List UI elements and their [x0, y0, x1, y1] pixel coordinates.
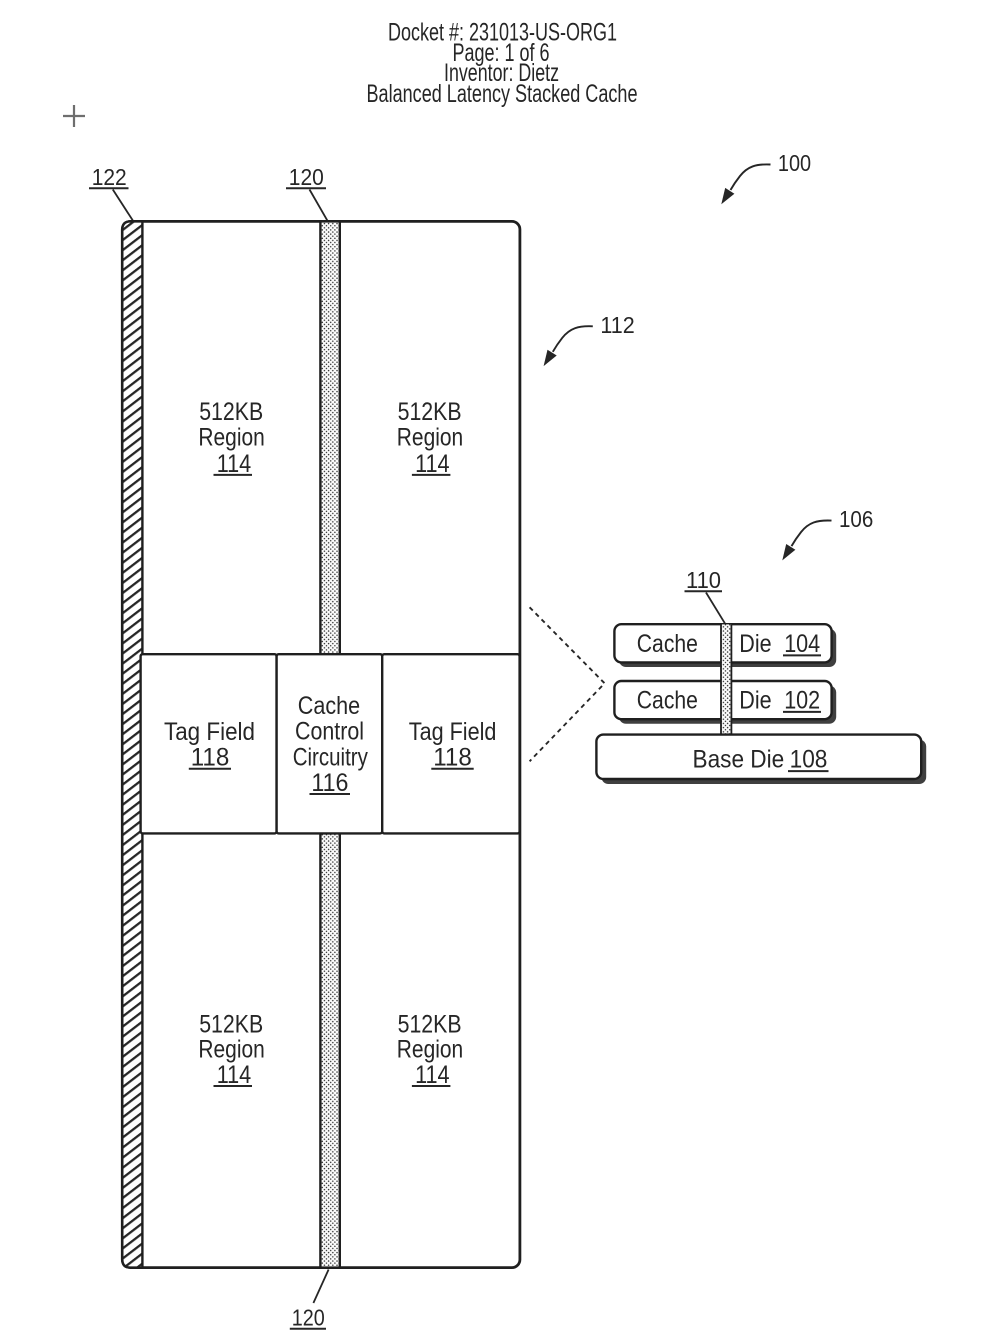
- svg-text:108: 108: [790, 747, 828, 774]
- svg-text:Circuitry: Circuitry: [293, 745, 369, 772]
- svg-text:Region: Region: [198, 1037, 264, 1064]
- svg-text:118: 118: [433, 745, 472, 772]
- svg-text:512KB: 512KB: [199, 1012, 263, 1039]
- svg-text:116: 116: [311, 770, 348, 797]
- svg-text:100: 100: [778, 150, 811, 176]
- svg-text:Region: Region: [198, 424, 264, 451]
- svg-text:512KB: 512KB: [398, 399, 462, 426]
- svg-text:512KB: 512KB: [398, 1012, 462, 1039]
- svg-text:102: 102: [784, 687, 820, 714]
- svg-text:Cache: Cache: [637, 687, 698, 714]
- svg-text:Region: Region: [397, 1037, 463, 1064]
- svg-text:Cache: Cache: [298, 693, 360, 720]
- svg-text:Die: Die: [739, 687, 771, 714]
- svg-text:Balanced Latency Stacked Cache: Balanced Latency Stacked Cache: [367, 80, 638, 108]
- svg-text:120: 120: [292, 1305, 325, 1331]
- svg-text:Die: Die: [739, 631, 771, 658]
- svg-text:122: 122: [92, 164, 127, 190]
- svg-text:Region: Region: [397, 424, 463, 451]
- svg-text:Tag Field: Tag Field: [164, 719, 255, 746]
- svg-text:112: 112: [600, 312, 634, 338]
- svg-text:106: 106: [839, 506, 873, 532]
- svg-text:Cache: Cache: [637, 631, 698, 658]
- svg-text:114: 114: [217, 451, 252, 478]
- svg-text:Tag Field: Tag Field: [409, 719, 497, 746]
- svg-text:114: 114: [415, 451, 450, 478]
- svg-text:104: 104: [784, 631, 820, 658]
- svg-text:120: 120: [289, 164, 324, 190]
- svg-text:Base Die: Base Die: [693, 747, 785, 774]
- svg-text:114: 114: [217, 1062, 252, 1089]
- svg-text:118: 118: [191, 745, 230, 772]
- svg-text:114: 114: [415, 1062, 450, 1089]
- svg-text:512KB: 512KB: [199, 399, 263, 426]
- svg-text:110: 110: [686, 567, 721, 593]
- svg-text:Control: Control: [295, 719, 364, 746]
